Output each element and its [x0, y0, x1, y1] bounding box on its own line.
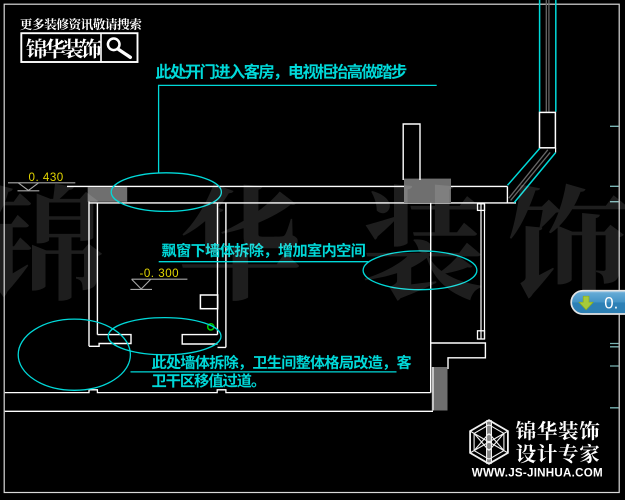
- svg-text:0. 430: 0. 430: [29, 171, 64, 184]
- svg-text:WWW.JS-JINHUA.COM: WWW.JS-JINHUA.COM: [472, 466, 603, 479]
- svg-text:-0. 300: -0. 300: [140, 267, 180, 280]
- svg-text:0.: 0.: [604, 294, 618, 313]
